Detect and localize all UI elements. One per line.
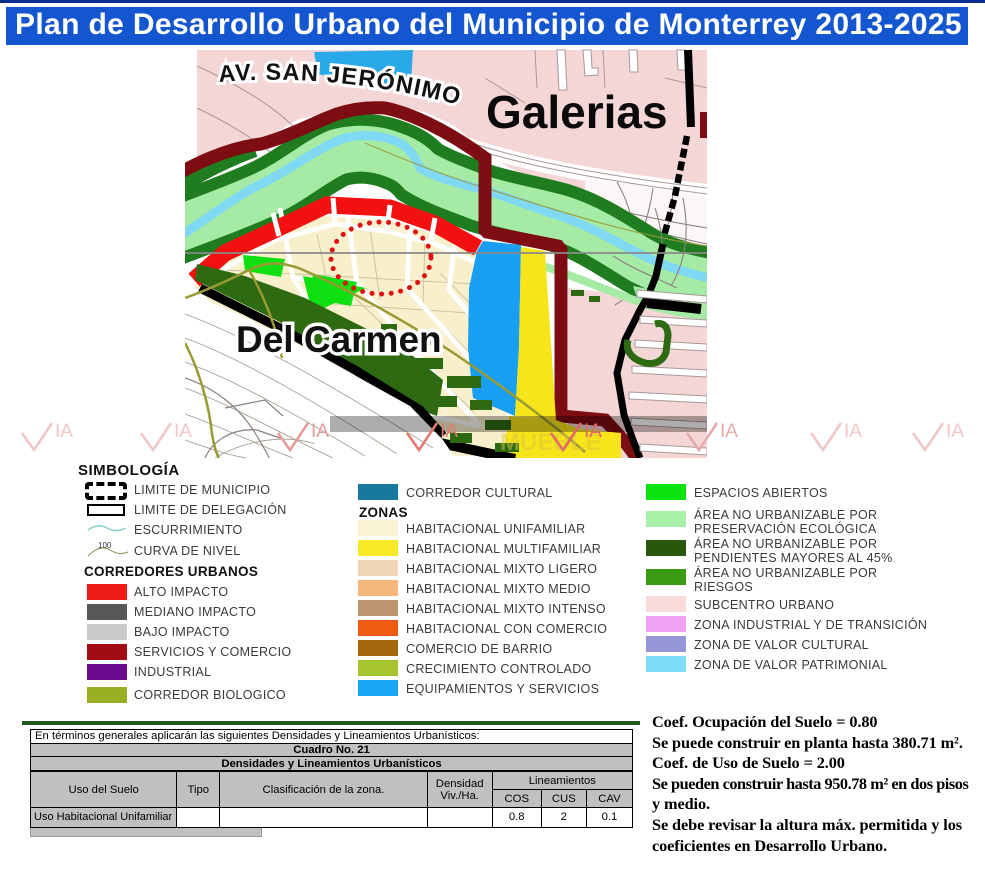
svg-text:100: 100 [98,541,112,550]
svg-text:IA: IA [844,421,862,442]
svg-text:IA: IA [55,421,73,442]
svg-text:IA: IA [174,421,192,442]
svg-text:IA: IA [311,421,329,442]
svg-text:IA: IA [720,421,738,442]
svg-text:IA: IA [584,421,602,442]
svg-text:Galerias: Galerias [486,86,668,138]
svg-text:Del Carmen: Del Carmen [236,319,442,360]
svg-text:IA: IA [946,421,964,442]
svg-text:IA: IA [440,421,458,442]
